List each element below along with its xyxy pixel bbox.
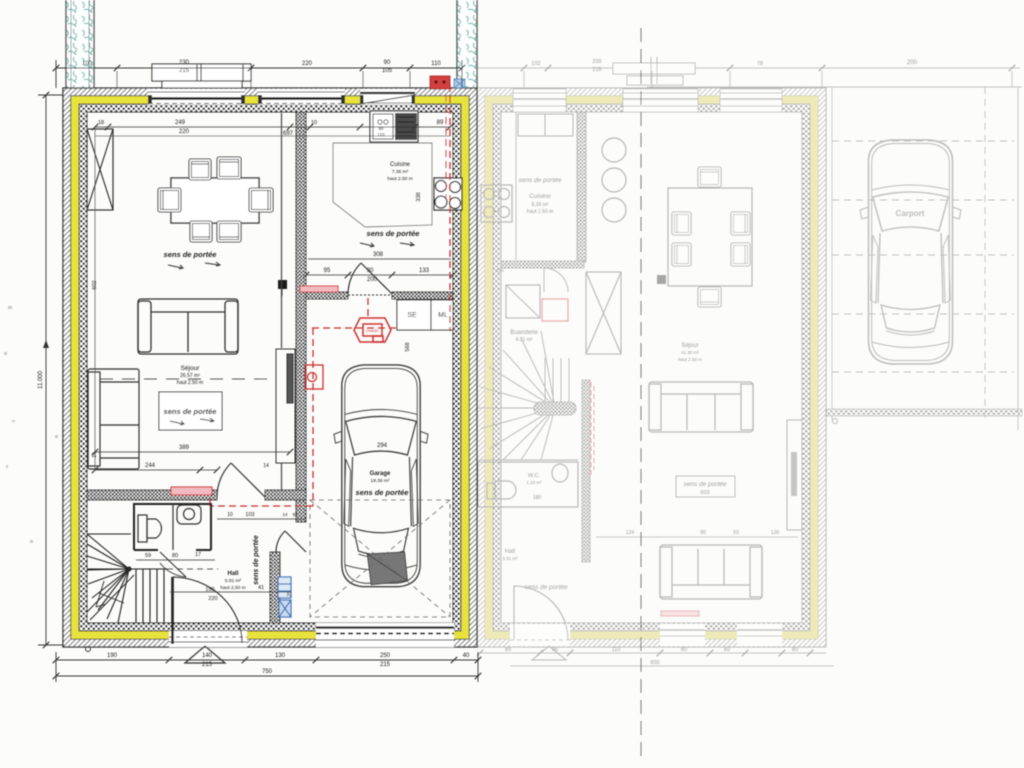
svg-text:Cuisine: Cuisine [390, 162, 411, 168]
svg-text:7.36 m²: 7.36 m² [392, 169, 409, 175]
svg-text:90: 90 [384, 60, 391, 66]
svg-text:sens de portée: sens de portée [683, 481, 726, 488]
svg-text:249: 249 [175, 120, 186, 126]
svg-text:200: 200 [907, 60, 918, 66]
svg-text:220: 220 [208, 596, 217, 602]
svg-text:haut 2.50 m: haut 2.50 m [220, 585, 245, 591]
svg-text:110: 110 [431, 61, 441, 67]
svg-text:ML: ML [438, 312, 448, 319]
svg-text:sens de portée: sens de portée [367, 229, 420, 238]
svg-text:sens de portée: sens de portée [164, 250, 217, 259]
svg-text:14: 14 [282, 512, 288, 517]
svg-text:haut 2.50 m: haut 2.50 m [177, 380, 203, 386]
svg-text:80: 80 [172, 553, 178, 559]
svg-text:Séjour: Séjour [681, 343, 698, 349]
svg-text:389: 389 [179, 445, 190, 451]
svg-text:25: 25 [287, 591, 293, 597]
svg-text:140: 140 [202, 653, 213, 659]
svg-text:CHAUD: CHAUD [366, 329, 379, 333]
svg-text:150: 150 [205, 587, 214, 593]
svg-text:Buanderie: Buanderie [510, 330, 538, 336]
svg-text:102: 102 [531, 61, 540, 67]
svg-text:SE: SE [407, 312, 417, 319]
svg-text:750: 750 [262, 669, 273, 675]
svg-text:sens de portée: sens de portée [164, 407, 217, 416]
svg-text:133: 133 [419, 268, 430, 274]
svg-text:100: 100 [82, 61, 93, 67]
svg-text:96: 96 [552, 647, 558, 653]
svg-text:sens de portée: sens de portée [356, 488, 409, 497]
svg-text:50: 50 [733, 530, 739, 536]
svg-text:190: 190 [107, 653, 118, 659]
svg-text:180: 180 [533, 495, 542, 501]
svg-text:sens de portée: sens de portée [524, 584, 567, 591]
svg-text:89: 89 [437, 120, 444, 126]
svg-text:11.000: 11.000 [38, 370, 44, 389]
svg-text:14: 14 [263, 463, 269, 469]
svg-text:W.C.: W.C. [528, 473, 540, 479]
svg-text:Cuisine: Cuisine [529, 193, 551, 200]
svg-text:3.31 m²: 3.31 m² [502, 556, 518, 561]
svg-text:5.91 m²: 5.91 m² [225, 578, 242, 584]
svg-text:1.23 m²: 1.23 m² [526, 480, 542, 485]
svg-text:200: 200 [592, 59, 601, 65]
svg-text:17: 17 [195, 552, 201, 558]
svg-text:110: 110 [612, 647, 621, 653]
svg-text:41: 41 [258, 585, 264, 591]
svg-text:41.30 m²: 41.30 m² [681, 350, 699, 355]
svg-text:Garage: Garage [370, 471, 391, 477]
svg-text:194: 194 [496, 268, 504, 273]
svg-text:80: 80 [792, 647, 798, 653]
svg-text:haut 2.50 m: haut 2.50 m [678, 357, 702, 362]
svg-text:95: 95 [324, 268, 331, 274]
svg-text:80: 80 [681, 647, 687, 653]
svg-text:294: 294 [377, 443, 388, 449]
svg-text:124: 124 [626, 530, 635, 536]
svg-text:haut 2.50 m: haut 2.50 m [387, 176, 412, 182]
svg-text:215: 215 [592, 67, 601, 73]
svg-text:308: 308 [373, 252, 384, 258]
svg-text:78: 78 [757, 61, 763, 67]
svg-text:59: 59 [145, 553, 151, 559]
svg-text:Hall: Hall [227, 571, 238, 577]
svg-text:220: 220 [302, 61, 313, 67]
svg-text:Carport: Carport [896, 209, 925, 218]
svg-text:568: 568 [405, 342, 411, 351]
svg-text:80: 80 [724, 647, 730, 653]
svg-text:603: 603 [700, 490, 709, 496]
svg-text:sens de portée: sens de portée [253, 535, 260, 585]
svg-text:338: 338 [416, 192, 422, 201]
svg-text:800: 800 [650, 660, 659, 666]
svg-text:130: 130 [771, 530, 780, 536]
svg-text:50: 50 [292, 512, 298, 517]
svg-text:103: 103 [245, 512, 254, 518]
svg-text:215: 215 [380, 662, 391, 668]
svg-text:90: 90 [700, 530, 706, 536]
svg-text:40: 40 [463, 653, 470, 659]
svg-text:26.57 m²: 26.57 m² [180, 373, 200, 379]
svg-text:215: 215 [179, 68, 190, 74]
svg-text:14: 14 [92, 452, 98, 458]
svg-text:105: 105 [382, 68, 393, 74]
svg-text:10: 10 [311, 120, 317, 126]
svg-text:Séjour: Séjour [181, 365, 201, 372]
svg-text:90: 90 [367, 268, 374, 274]
svg-text:130: 130 [275, 653, 286, 659]
svg-text:220: 220 [179, 129, 190, 135]
svg-text:230: 230 [179, 60, 190, 66]
svg-text:18: 18 [98, 120, 104, 126]
svg-text:244: 244 [145, 463, 156, 469]
svg-text:10: 10 [227, 512, 233, 518]
svg-text:89: 89 [505, 647, 511, 653]
svg-text:200: 200 [367, 277, 378, 283]
svg-text:18.36 m²: 18.36 m² [371, 478, 390, 484]
svg-text:8.36 m²: 8.36 m² [532, 202, 549, 208]
svg-text:602: 602 [92, 280, 98, 289]
svg-text:697: 697 [283, 131, 294, 137]
svg-text:Hall: Hall [505, 549, 515, 555]
svg-text:215: 215 [202, 662, 213, 668]
svg-text:250: 250 [380, 653, 391, 659]
svg-text:4.21 m²: 4.21 m² [516, 337, 533, 343]
svg-text:haut 2.50 m: haut 2.50 m [527, 209, 553, 215]
svg-text:sens de portée: sens de portée [518, 177, 561, 184]
